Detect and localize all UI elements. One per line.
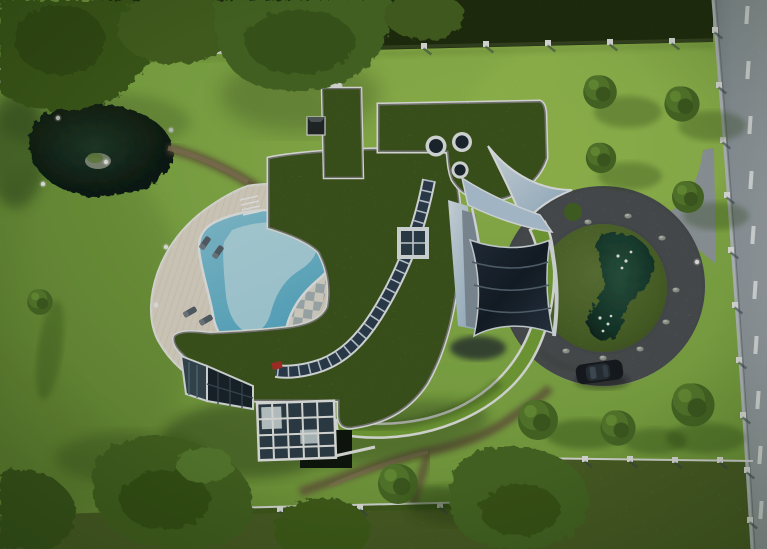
scene-svg [0,0,767,549]
vignette [0,0,767,549]
aerial-render [0,0,767,549]
